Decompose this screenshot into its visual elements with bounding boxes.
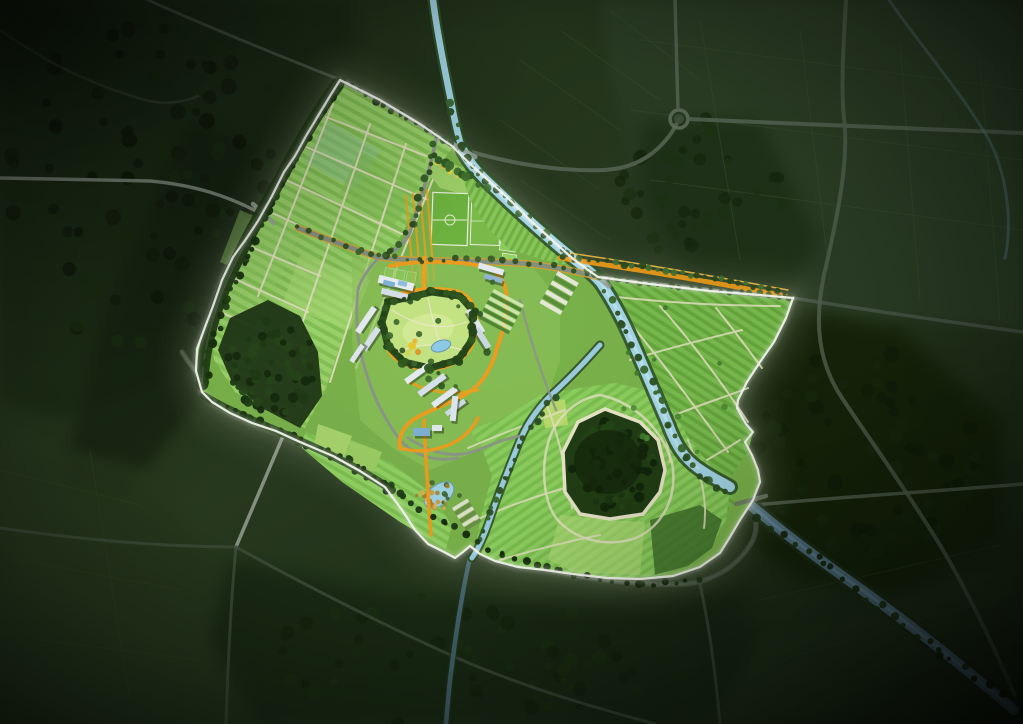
corner-shade-bottomright xyxy=(0,0,1023,724)
masterplan-map-canvas xyxy=(0,0,1023,724)
masterplan-aerial-view xyxy=(0,0,1023,724)
